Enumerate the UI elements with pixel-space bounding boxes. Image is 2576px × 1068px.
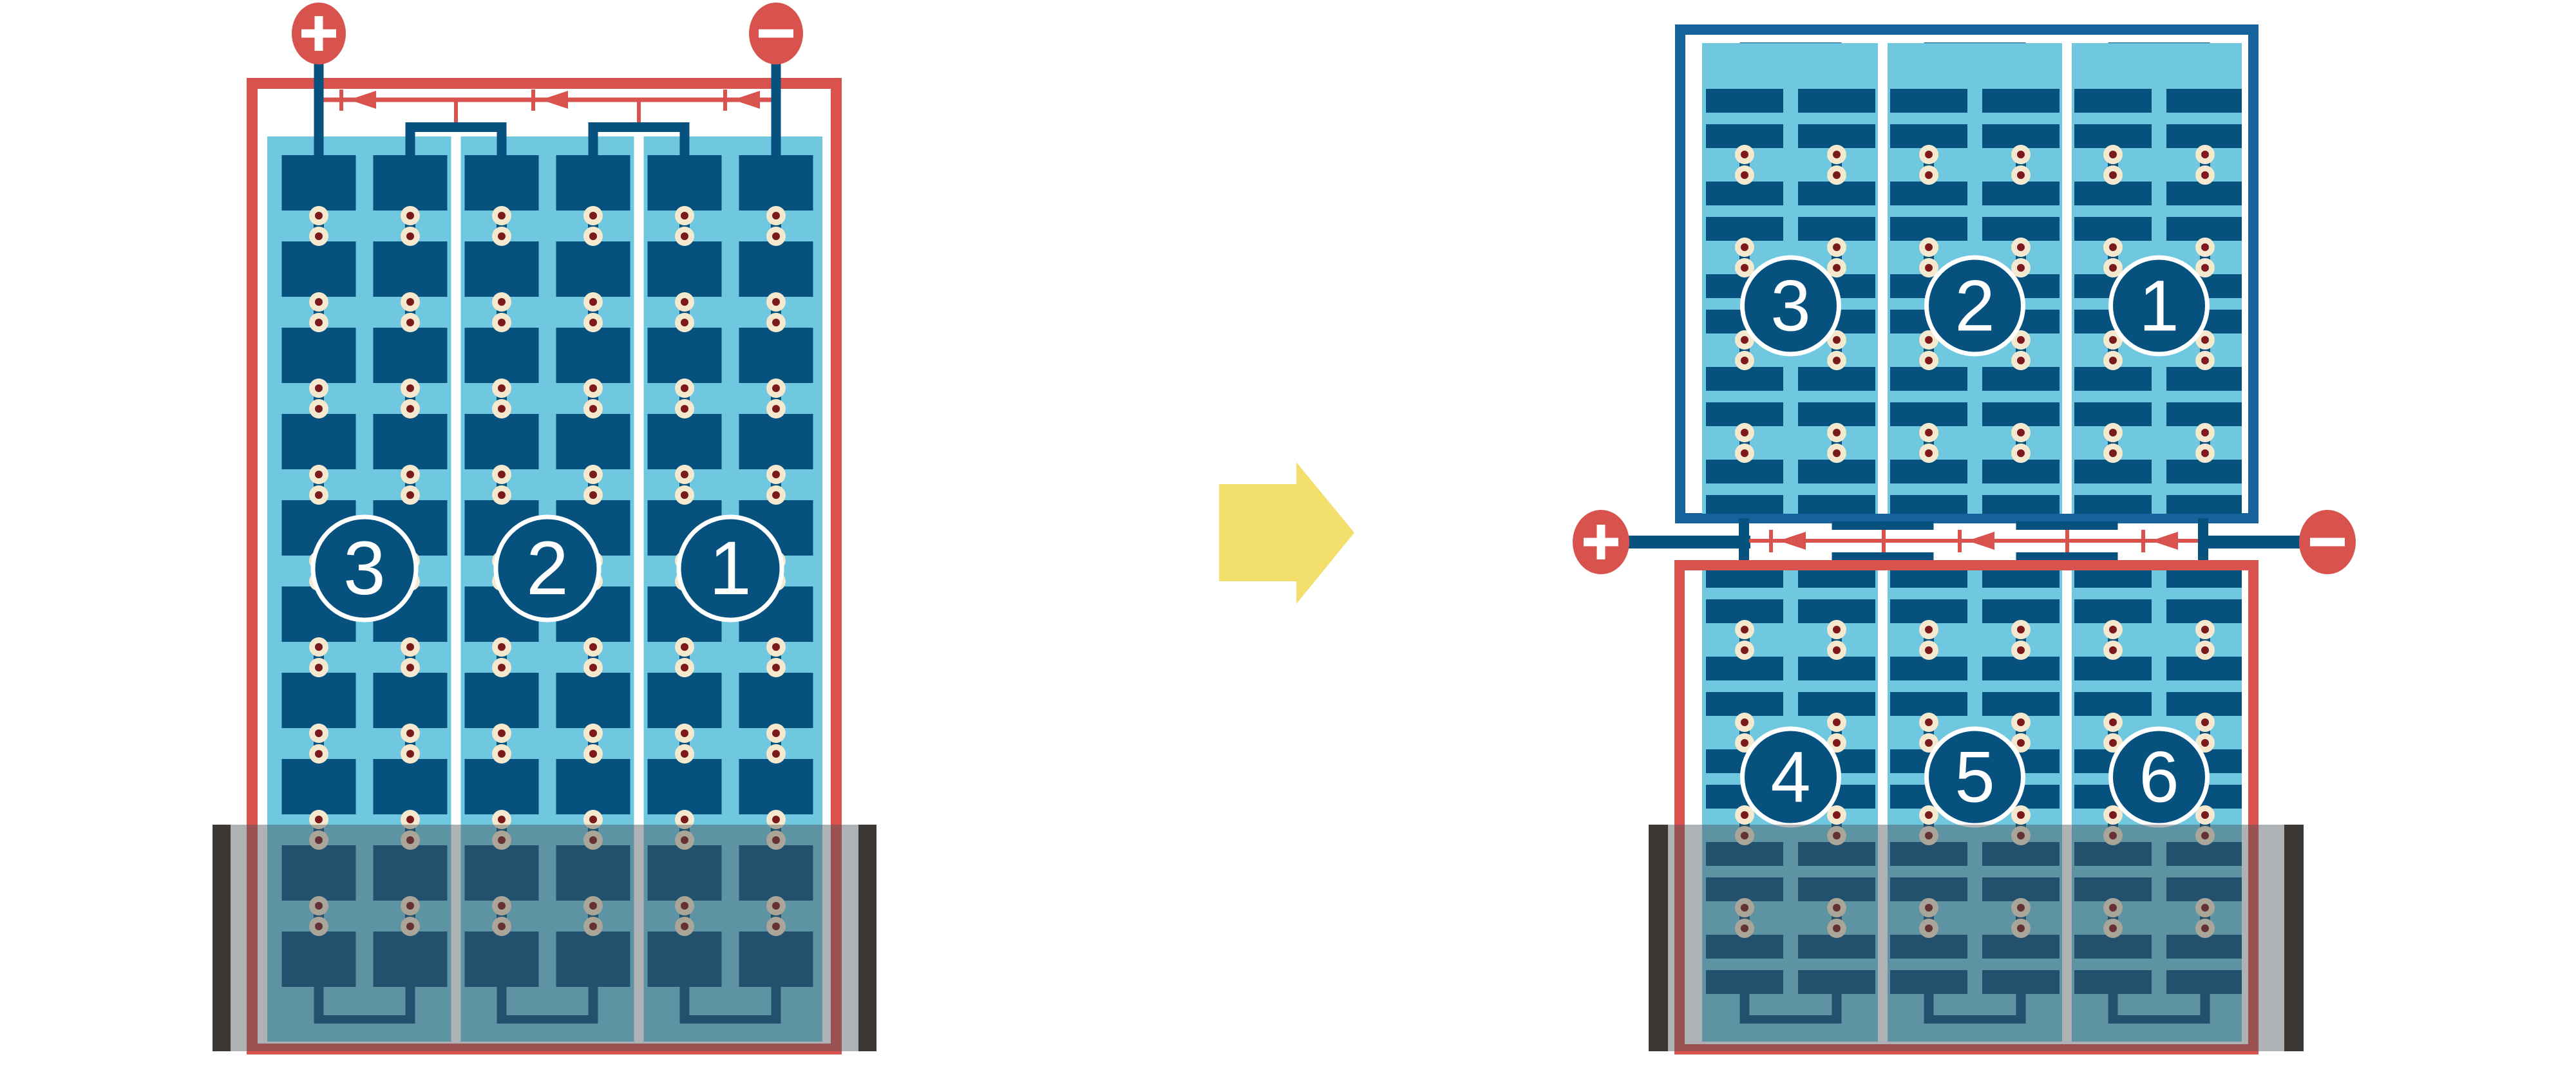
cell-plate xyxy=(282,414,356,469)
connector-dot-center xyxy=(498,384,506,392)
connector-dot-center xyxy=(315,298,323,306)
connector-dot-center xyxy=(498,643,506,651)
connector-dot-center xyxy=(498,212,506,220)
connector-dot-center xyxy=(2109,264,2117,272)
connector-dot-center xyxy=(1741,151,1748,158)
cell-plate xyxy=(2074,217,2152,241)
cell-plate xyxy=(2074,460,2152,483)
connector-dot-center xyxy=(1833,151,1841,158)
left-string-label-1: 1 xyxy=(709,526,752,611)
connector-dot-center xyxy=(2201,151,2209,158)
cell-plate xyxy=(648,759,722,814)
connector-dot-center xyxy=(2201,449,2209,457)
diode-tick xyxy=(339,89,343,111)
cell-plate xyxy=(556,759,630,814)
left-tank-wall-right xyxy=(858,825,876,1051)
connector-dot-center xyxy=(1925,739,1933,747)
connector-dot-center xyxy=(1741,357,1748,364)
connector-dot-center xyxy=(1925,626,1933,633)
cell-plate xyxy=(1706,217,1783,241)
left-negative-post xyxy=(772,61,781,155)
connector-dot-center xyxy=(1925,336,1933,344)
connector-dot-center xyxy=(681,319,688,326)
cell-plate xyxy=(465,155,539,211)
connector-dot-center xyxy=(772,816,780,823)
connector-dot-center xyxy=(315,729,323,737)
connector-dot-center xyxy=(1925,171,1933,179)
transfer-arrow-icon xyxy=(1219,462,1354,604)
connector-dot-center xyxy=(772,664,780,671)
right-top-column-separator-2 xyxy=(2062,43,2072,514)
cell-plate xyxy=(648,155,722,211)
cell-plate xyxy=(1706,460,1783,483)
cell-plate xyxy=(282,155,356,211)
connector-dot-center xyxy=(2017,336,2025,344)
connector-dot-center xyxy=(681,729,688,737)
cell-plate xyxy=(556,328,630,383)
right-bottom-string-badge-5: 5 xyxy=(1927,729,2023,825)
connector-dot-center xyxy=(681,491,688,499)
left-top-bridge-leg xyxy=(680,122,690,155)
connector-dot-center xyxy=(1741,336,1748,344)
cell-plate xyxy=(465,759,539,814)
connector-dot-center xyxy=(2109,718,2117,726)
right-top-column-separator-1 xyxy=(1878,43,1888,514)
connector-dot-center xyxy=(498,491,506,499)
diode-tick xyxy=(531,89,535,111)
cell-plate xyxy=(1890,89,1967,113)
connector-dot-center xyxy=(681,750,688,758)
cell-plate xyxy=(1982,89,2060,113)
connector-dot-center xyxy=(1741,264,1748,272)
cell-plate xyxy=(556,155,630,211)
cell-plate xyxy=(1706,599,1783,623)
connector-dot-center xyxy=(772,319,780,326)
cell-plate xyxy=(282,673,356,728)
connector-dot-center xyxy=(772,750,780,758)
connector-dot-center xyxy=(2109,243,2117,251)
right-bottom-battery-panel: 4 5 6 xyxy=(1649,564,2304,1051)
connector-dot-center xyxy=(2017,151,2025,158)
cell-plate xyxy=(282,328,356,383)
connector-dot-center xyxy=(2017,718,2025,726)
battery-wiring-diagram: 3 2 1 xyxy=(0,0,2576,1068)
cell-plate xyxy=(1798,692,1875,716)
junction-tick-1 xyxy=(1882,530,1886,552)
cell-plate xyxy=(1798,460,1875,483)
connector-dot-center xyxy=(1925,151,1933,158)
connector-dot-center xyxy=(589,232,597,240)
cell-plate xyxy=(1706,367,1783,391)
left-bus-stub-2 xyxy=(637,102,641,123)
connector-dot-center xyxy=(406,384,414,392)
cell-plate xyxy=(374,328,448,383)
cell-plate xyxy=(2074,367,2152,391)
minus-icon xyxy=(759,30,793,38)
cell-plate xyxy=(2166,460,2244,483)
connector-dot-center xyxy=(1925,357,1933,364)
left-bus-stub-1 xyxy=(454,102,458,123)
diode-tick xyxy=(1769,530,1773,552)
connector-dot-center xyxy=(772,212,780,220)
connector-dot-center xyxy=(1833,626,1841,633)
cell-plate xyxy=(1706,124,1783,148)
connector-dot-center xyxy=(1741,626,1748,633)
connector-dot-center xyxy=(589,491,597,499)
left-top-bridge-leg xyxy=(497,122,507,155)
connector-dot-center xyxy=(2109,646,2117,654)
connector-dot-center xyxy=(772,384,780,392)
right-bottom-string-label-6: 6 xyxy=(2139,737,2179,818)
connector-dot-center xyxy=(406,232,414,240)
connector-dot-center xyxy=(2017,449,2025,457)
cell-plate xyxy=(2074,89,2152,113)
diode-arrow-icon xyxy=(1779,532,1806,550)
cell-plate xyxy=(1890,402,1967,426)
connector-dot-center xyxy=(315,232,323,240)
connector-dot-center xyxy=(681,298,688,306)
right-water-overlay xyxy=(1668,825,2284,1051)
cell-plate xyxy=(1706,692,1783,716)
connector-dot-center xyxy=(1925,718,1933,726)
cell-plate xyxy=(465,673,539,728)
connector-dot-center xyxy=(406,729,414,737)
connector-dot-center xyxy=(1833,243,1841,251)
connector-dot-center xyxy=(2017,357,2025,364)
cell-plate xyxy=(2074,124,2152,148)
cell-plate xyxy=(1798,182,1875,205)
connector-dot-center xyxy=(498,750,506,758)
connector-dot-center xyxy=(589,664,597,671)
cell-plate xyxy=(1890,460,1967,483)
cell-plate xyxy=(648,414,722,469)
connector-dot-center xyxy=(681,664,688,671)
connector-dot-center xyxy=(2017,739,2025,747)
cell-plate xyxy=(282,759,356,814)
connector-dot-center xyxy=(406,212,414,220)
right-tank-wall-right xyxy=(2284,825,2304,1051)
connector-dot-center xyxy=(681,816,688,823)
cell-plate xyxy=(2074,692,2152,716)
cell-plate xyxy=(648,241,722,297)
connector-dot-center xyxy=(772,643,780,651)
cell-plate xyxy=(648,673,722,728)
connector-dot-center xyxy=(681,405,688,413)
right-top-string-badge-3: 3 xyxy=(1743,258,1839,354)
cell-plate xyxy=(556,414,630,469)
connector-dot-center xyxy=(2017,429,2025,436)
junction-rising-bridge xyxy=(2016,552,2118,561)
cell-plate xyxy=(465,328,539,383)
connector-dot-center xyxy=(2201,811,2209,819)
connector-dot-center xyxy=(1833,646,1841,654)
cell-plate xyxy=(374,155,448,211)
cell-plate xyxy=(1890,367,1967,391)
left-string-label-2: 2 xyxy=(526,526,569,611)
connector-dot-center xyxy=(589,405,597,413)
left-top-bridge-leg xyxy=(406,122,415,155)
connector-dot-center xyxy=(406,298,414,306)
connector-dot-center xyxy=(2109,811,2117,819)
right-top-string-label-1: 1 xyxy=(2139,266,2179,346)
cell-plate xyxy=(2074,657,2152,680)
connector-dot-center xyxy=(1833,811,1841,819)
diode-arrow-icon xyxy=(2151,532,2178,550)
connector-dot-center xyxy=(772,471,780,478)
cell-plate xyxy=(2166,402,2244,426)
connector-dot-center xyxy=(2017,264,2025,272)
cell-plate xyxy=(2166,182,2244,205)
cell-plate xyxy=(374,673,448,728)
connector-dot-center xyxy=(2201,336,2209,344)
cell-plate xyxy=(1982,182,2060,205)
cell-plate xyxy=(739,328,813,383)
cell-plate xyxy=(2074,402,2152,426)
connector-dot-center xyxy=(2109,336,2117,344)
right-top-string-label-3: 3 xyxy=(1770,266,1810,346)
connector-dot-center xyxy=(315,319,323,326)
connector-dot-center xyxy=(589,212,597,220)
connector-dot-center xyxy=(2201,357,2209,364)
connector-dot-center xyxy=(498,319,506,326)
connector-dot-center xyxy=(589,384,597,392)
connector-dot-center xyxy=(498,664,506,671)
left-top-bridge-bar xyxy=(589,122,690,132)
connector-dot-center xyxy=(315,643,323,651)
junction-hanging-bridge xyxy=(2016,521,2118,530)
right-top-string-badge-2: 2 xyxy=(1927,258,2023,354)
connector-dot-center xyxy=(498,729,506,737)
connector-dot-center xyxy=(1741,243,1748,251)
cell-plate xyxy=(1706,89,1783,113)
connector-dot-center xyxy=(315,816,323,823)
left-water-overlay xyxy=(231,825,858,1051)
connector-dot-center xyxy=(315,750,323,758)
connector-dot-center xyxy=(1925,243,1933,251)
junction-rising-bridge xyxy=(1832,552,1934,561)
diode-tick xyxy=(723,89,727,111)
connector-dot-center xyxy=(1741,646,1748,654)
left-negative-terminal xyxy=(749,3,803,64)
junction-tick-2 xyxy=(2065,530,2069,552)
connector-dot-center xyxy=(2201,718,2209,726)
connector-dot-center xyxy=(2201,646,2209,654)
minus-icon xyxy=(2310,538,2345,547)
connector-dot-center xyxy=(2109,357,2117,364)
cell-plate xyxy=(739,155,813,211)
cell-plate xyxy=(1798,89,1875,113)
connector-dot-center xyxy=(589,750,597,758)
connector-dot-center xyxy=(1741,429,1748,436)
diode-arrow-icon xyxy=(349,91,376,109)
connector-dot-center xyxy=(2109,429,2117,436)
right-negative-wire xyxy=(2207,536,2300,548)
connector-dot-center xyxy=(406,750,414,758)
connector-dot-center xyxy=(315,471,323,478)
cell-plate xyxy=(1890,692,1967,716)
cell-plate xyxy=(1890,599,1967,623)
cell-plate xyxy=(2166,657,2244,680)
connector-dot-center xyxy=(589,729,597,737)
cell-plate xyxy=(2166,217,2244,241)
diode-tick xyxy=(2141,530,2145,552)
cell-plate xyxy=(1982,217,2060,241)
cell-plate xyxy=(739,414,813,469)
connector-dot-center xyxy=(2201,243,2209,251)
connector-dot-center xyxy=(1925,264,1933,272)
connector-dot-center xyxy=(2201,429,2209,436)
connector-dot-center xyxy=(315,405,323,413)
connector-dot-center xyxy=(2109,171,2117,179)
connector-dot-center xyxy=(406,405,414,413)
connector-dot-center xyxy=(1925,449,1933,457)
junction-post-right xyxy=(2198,518,2208,561)
connector-dot-center xyxy=(2201,626,2209,633)
connector-dot-center xyxy=(406,816,414,823)
connector-dot-center xyxy=(406,643,414,651)
cell-plate xyxy=(648,328,722,383)
connector-dot-center xyxy=(498,405,506,413)
cell-plate xyxy=(1798,402,1875,426)
connector-dot-center xyxy=(681,471,688,478)
connector-dot-center xyxy=(498,471,506,478)
connector-dot-center xyxy=(1925,646,1933,654)
cell-plate xyxy=(1982,124,2060,148)
cell-plate xyxy=(556,673,630,728)
cell-plate xyxy=(1890,657,1967,680)
connector-dot-center xyxy=(406,319,414,326)
cell-plate xyxy=(1982,402,2060,426)
connector-dot-center xyxy=(315,491,323,499)
right-positive-wire xyxy=(1628,536,1750,548)
connector-dot-center xyxy=(589,298,597,306)
connector-dot-center xyxy=(2017,646,2025,654)
connector-dot-center xyxy=(589,319,597,326)
left-tank-wall-left xyxy=(213,825,231,1051)
connector-dot-center xyxy=(1833,336,1841,344)
cell-plate xyxy=(2166,367,2244,391)
cell-plate xyxy=(739,241,813,297)
right-bottom-string-badge-6: 6 xyxy=(2111,729,2208,825)
diode-tick xyxy=(1958,530,1962,552)
connector-dot-center xyxy=(1741,171,1748,179)
cell-plate xyxy=(1798,599,1875,623)
connector-dot-center xyxy=(2201,171,2209,179)
left-string-label-3: 3 xyxy=(343,526,386,611)
connector-dot-center xyxy=(2017,171,2025,179)
cell-plate xyxy=(2166,124,2244,148)
connector-dot-center xyxy=(498,232,506,240)
right-positive-terminal xyxy=(1573,510,1629,574)
cell-plate xyxy=(465,241,539,297)
cell-plate xyxy=(282,241,356,297)
connector-dot-center xyxy=(2109,626,2117,633)
connector-dot-center xyxy=(1833,718,1841,726)
right-top-battery-panel: 3 2 1 xyxy=(1680,30,2253,519)
cell-plate xyxy=(1982,599,2060,623)
connector-dot-center xyxy=(315,664,323,671)
cell-plate xyxy=(1706,402,1783,426)
cell-plate xyxy=(1798,367,1875,391)
connector-dot-center xyxy=(589,471,597,478)
connector-dot-center xyxy=(2109,449,2117,457)
connector-dot-center xyxy=(1741,718,1748,726)
right-bottom-string-label-5: 5 xyxy=(1955,737,1994,818)
cell-plate xyxy=(739,759,813,814)
connector-dot-center xyxy=(772,298,780,306)
left-top-bridge-leg xyxy=(589,122,598,155)
connector-dot-center xyxy=(498,298,506,306)
cell-plate xyxy=(374,414,448,469)
connector-dot-center xyxy=(1925,811,1933,819)
right-bottom-string-label-4: 4 xyxy=(1770,737,1810,818)
connector-dot-center xyxy=(315,384,323,392)
connector-dot-center xyxy=(1833,171,1841,179)
left-string-badge-1: 1 xyxy=(679,517,782,620)
cell-plate xyxy=(374,241,448,297)
connector-dot-center xyxy=(2017,626,2025,633)
cell-plate xyxy=(465,414,539,469)
cell-plate xyxy=(1890,124,1967,148)
connector-dot-center xyxy=(681,232,688,240)
cell-plate xyxy=(2166,692,2244,716)
connector-dot-center xyxy=(406,491,414,499)
right-tank-wall-left xyxy=(1649,825,1668,1051)
connector-dot-center xyxy=(589,643,597,651)
right-top-string-label-2: 2 xyxy=(1955,266,1994,346)
connector-dot-center xyxy=(2017,811,2025,819)
cell-plate xyxy=(1798,657,1875,680)
connector-dot-center xyxy=(772,405,780,413)
right-bottom-string-badge-4: 4 xyxy=(1743,729,1839,825)
cell-plate xyxy=(2074,182,2152,205)
diode-arrow-icon xyxy=(1967,532,1994,550)
connector-dot-center xyxy=(772,232,780,240)
cell-plate xyxy=(1706,657,1783,680)
connector-dot-center xyxy=(315,212,323,220)
left-string-badge-3: 3 xyxy=(313,517,416,620)
connector-dot-center xyxy=(2109,151,2117,158)
cell-plate xyxy=(1982,367,2060,391)
cell-plate xyxy=(739,673,813,728)
left-string-badge-2: 2 xyxy=(496,517,599,620)
left-positive-post xyxy=(314,61,324,155)
cell-plate xyxy=(2166,89,2244,113)
connector-dot-center xyxy=(772,729,780,737)
left-battery-panel: 3 2 1 xyxy=(213,3,876,1051)
cell-plate xyxy=(1706,182,1783,205)
connector-dot-center xyxy=(1833,357,1841,364)
connector-dot-center xyxy=(1925,429,1933,436)
connector-dot-center xyxy=(406,664,414,671)
connector-dot-center xyxy=(1833,739,1841,747)
connector-dot-center xyxy=(589,816,597,823)
left-positive-terminal xyxy=(292,3,346,64)
cell-plate xyxy=(556,241,630,297)
connector-dot-center xyxy=(772,491,780,499)
connector-dot-center xyxy=(1833,264,1841,272)
cell-plate xyxy=(1798,217,1875,241)
connector-dot-center xyxy=(681,212,688,220)
cell-plate xyxy=(1798,124,1875,148)
connector-dot-center xyxy=(681,643,688,651)
connector-dot-center xyxy=(2017,243,2025,251)
connector-dot-center xyxy=(1741,449,1748,457)
cell-plate xyxy=(2166,599,2244,623)
right-top-string-badge-1: 1 xyxy=(2111,258,2208,354)
cell-plate xyxy=(1982,460,2060,483)
junction-hanging-bridge xyxy=(1832,521,1934,530)
